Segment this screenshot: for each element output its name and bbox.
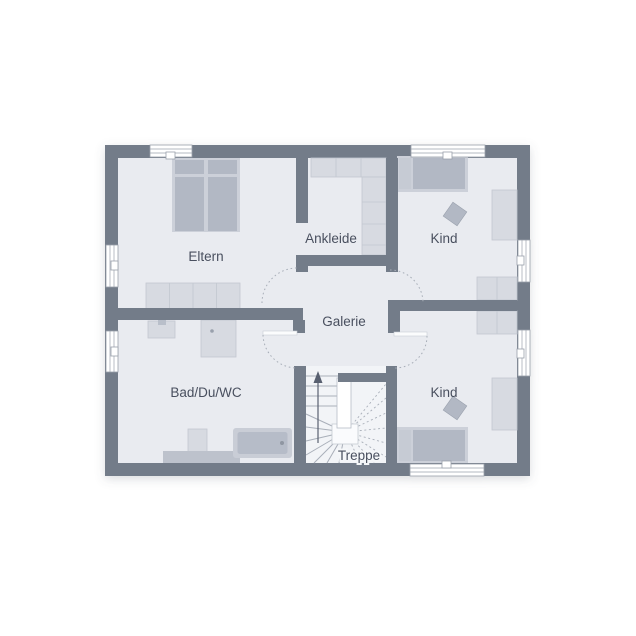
wall-stair-top bbox=[338, 373, 388, 382]
room-label-kind-top: Kind bbox=[430, 231, 457, 246]
room-label-treppe: Treppe bbox=[338, 448, 380, 463]
wall-eltern-ankleide bbox=[296, 158, 308, 223]
wall-ankleide-kind bbox=[386, 158, 398, 268]
wall-eltern-bad bbox=[105, 308, 303, 320]
wall-ankleide-galerie bbox=[296, 255, 398, 266]
desk bbox=[492, 378, 517, 430]
stair-void bbox=[337, 378, 351, 428]
door-jamb bbox=[386, 266, 398, 272]
door-jamb bbox=[296, 266, 308, 272]
window-top-kind bbox=[411, 145, 485, 159]
shower bbox=[201, 320, 236, 357]
wall-stair-left bbox=[294, 366, 306, 463]
wardrobe bbox=[146, 283, 240, 311]
wardrobe bbox=[477, 311, 517, 334]
closet-top-row bbox=[311, 158, 386, 177]
toilet bbox=[188, 429, 207, 452]
bathtub bbox=[233, 428, 292, 458]
room-label-galerie: Galerie bbox=[322, 314, 366, 329]
floor-plan: Eltern Ankleide Kind Galerie Bad/Du/WC K… bbox=[105, 145, 530, 476]
room-label-kind-bottom: Kind bbox=[430, 385, 457, 400]
window-left-eltern bbox=[106, 245, 118, 287]
bed bbox=[397, 156, 468, 192]
window-right-kind-bottom bbox=[517, 330, 530, 376]
wardrobe bbox=[477, 277, 517, 300]
room-label-ankleide: Ankleide bbox=[305, 231, 357, 246]
window-right-kind-top bbox=[517, 240, 530, 282]
bed bbox=[397, 427, 468, 463]
wall-kind-kind bbox=[388, 300, 517, 311]
window-top-eltern bbox=[150, 145, 192, 159]
washbasin bbox=[148, 320, 175, 338]
floor-plan-canvas: Eltern Ankleide Kind Galerie Bad/Du/WC K… bbox=[0, 0, 636, 636]
floor-plan-svg: Eltern Ankleide Kind Galerie Bad/Du/WC K… bbox=[0, 0, 636, 636]
door-leaf-bad bbox=[263, 331, 297, 335]
door-jamb bbox=[388, 311, 400, 333]
vanity-bench bbox=[163, 451, 240, 463]
double-bed bbox=[172, 158, 240, 232]
door-leaf-kind-bottom bbox=[394, 332, 427, 336]
room-label-bad: Bad/Du/WC bbox=[170, 385, 242, 400]
room-label-eltern: Eltern bbox=[188, 249, 223, 264]
window-left-bad bbox=[106, 331, 118, 372]
desk bbox=[492, 190, 517, 240]
closet-side-column bbox=[362, 177, 386, 255]
